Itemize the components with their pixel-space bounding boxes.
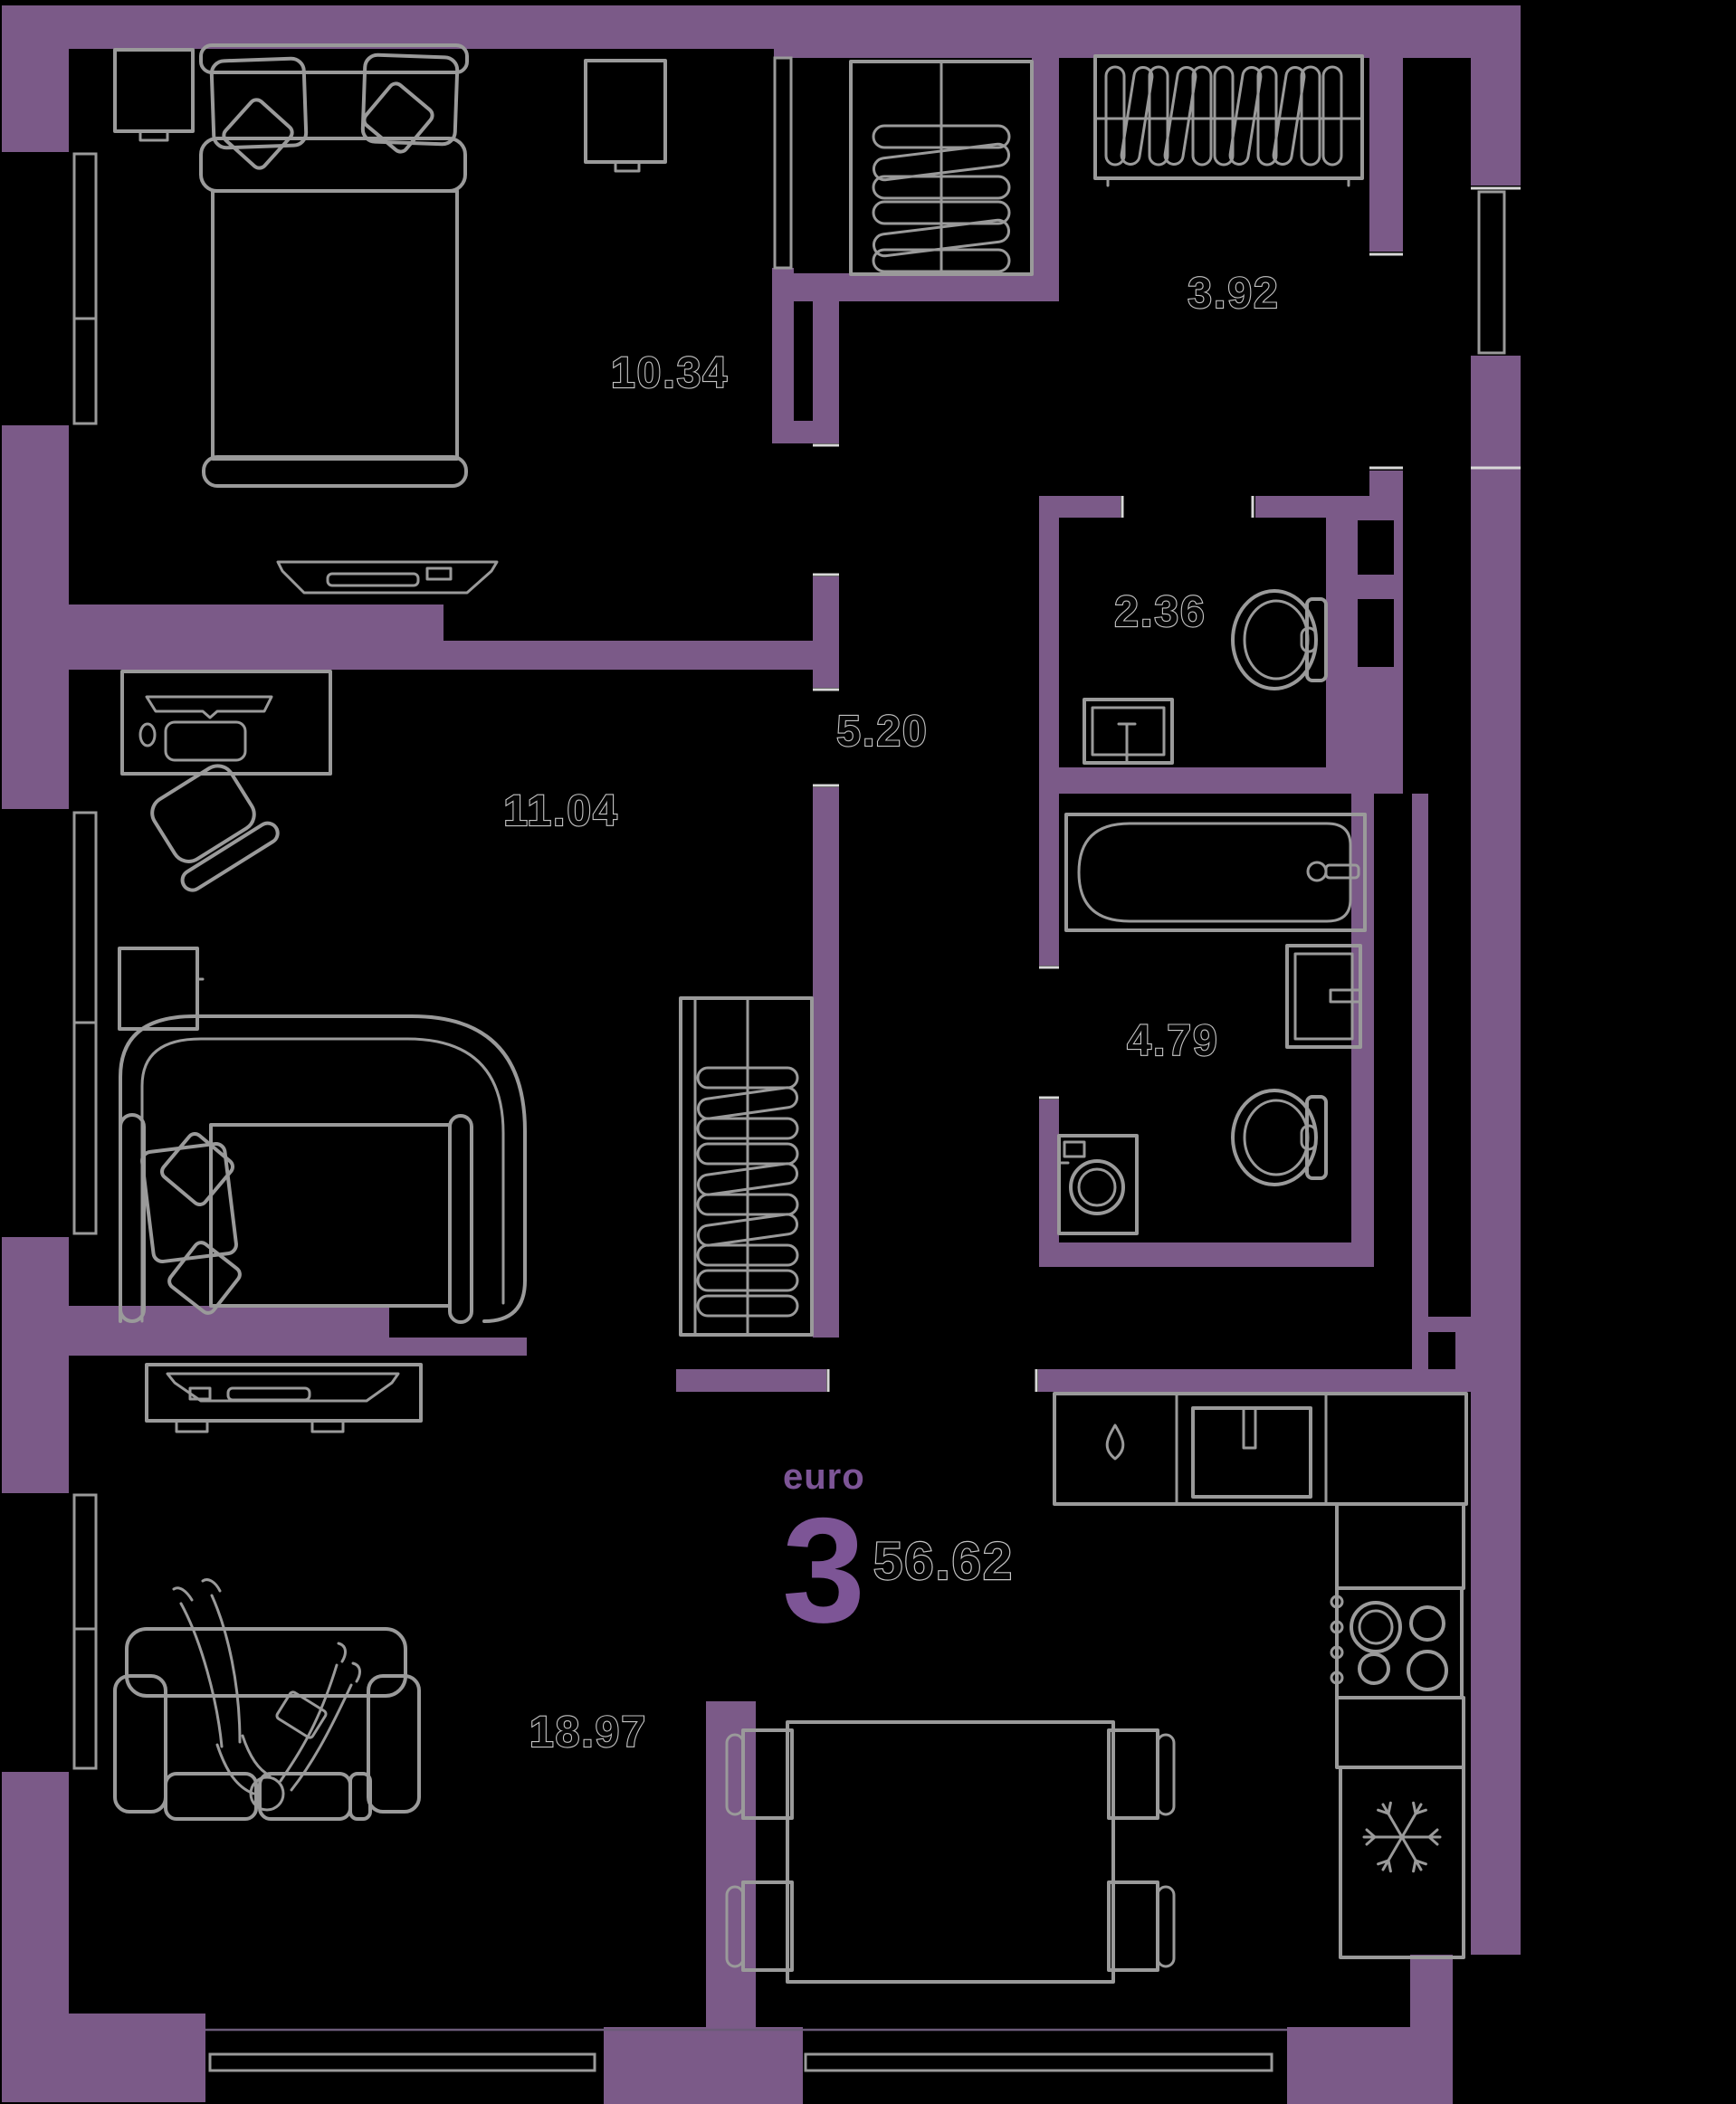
area-label-wc: 2.36 <box>1114 588 1206 636</box>
wall-segment <box>1039 1242 1374 1267</box>
area-label-hallway: 5.20 <box>836 708 928 756</box>
area-label-bedroom: 10.34 <box>611 349 729 397</box>
dining-chair <box>1109 1730 1174 1818</box>
dining-chair <box>1109 1882 1174 1970</box>
wall-segment <box>813 576 839 688</box>
wall-segment <box>1255 496 1326 518</box>
wardrobe-hangers-2 <box>681 998 812 1335</box>
wall-segment <box>2 1772 69 2021</box>
labels: 10.34 3.92 2.36 5.20 11.04 4.79 18.97 eu… <box>503 270 1279 1757</box>
window <box>806 2054 1272 2071</box>
wall-segment <box>69 605 444 670</box>
entrance-opening <box>1479 192 1504 353</box>
wall-segment <box>2 425 69 809</box>
area-label-bedroom2: 11.04 <box>503 787 618 835</box>
desk <box>122 671 330 774</box>
wall-segment <box>2 1237 69 1493</box>
sofa-pillow <box>159 1131 236 1208</box>
wardrobe-hangers <box>851 62 1032 274</box>
double-bed <box>201 45 467 486</box>
kitchen-counter <box>1054 1394 1466 1504</box>
wall-segment <box>1039 496 1059 794</box>
fridge <box>1340 1767 1464 1957</box>
unit-badge: euro 3 56.62 <box>782 1457 1014 1653</box>
wall-segment <box>706 1701 756 2027</box>
dining-table <box>787 1722 1113 1982</box>
wall-segment <box>676 1369 826 1392</box>
wall-segment <box>1039 1100 1059 1267</box>
wall-segment <box>1032 52 1059 301</box>
wall-segment <box>2 5 774 49</box>
drying-rack <box>1095 56 1362 186</box>
bedroom-tv <box>278 562 497 593</box>
sofa-bed <box>120 1016 525 1322</box>
living-room-furniture <box>115 1365 421 1819</box>
wall-segment <box>1287 2027 1453 2104</box>
office-chair <box>138 755 281 893</box>
tv-console <box>147 1365 421 1432</box>
area-label-loggia: 3.92 <box>1188 270 1279 318</box>
sofa <box>115 1629 419 1819</box>
wall-segment <box>1039 767 1374 794</box>
washbasin <box>1084 700 1172 763</box>
unit-total-area: 56.62 <box>873 1532 1014 1591</box>
wall-segment <box>1410 1955 1453 2029</box>
sofa-pillow <box>141 1143 237 1262</box>
loggia-furniture <box>851 56 1362 274</box>
stove <box>1331 1588 1462 1698</box>
window <box>74 154 96 424</box>
wall-segment <box>1471 356 1521 1955</box>
wall-segment <box>1412 794 1428 1317</box>
wall-segment <box>2 2014 205 2102</box>
wall-segment <box>772 273 1035 301</box>
kitchen-cabinet <box>1337 1504 1464 1588</box>
washbasin-2 <box>1287 946 1360 1047</box>
toilet <box>1233 591 1326 689</box>
floor-plan-canvas: 10.34 3.92 2.36 5.20 11.04 4.79 18.97 eu… <box>0 0 1736 2104</box>
bedroom2-furniture <box>119 671 812 1335</box>
window <box>74 1495 96 1768</box>
window <box>210 2054 595 2071</box>
nightstand <box>586 61 665 162</box>
bedroom-furniture <box>115 45 665 593</box>
wall-segment <box>604 2027 803 2104</box>
decor-pillow <box>221 97 295 171</box>
walls <box>2 5 1521 2104</box>
wall-segment <box>2 5 69 152</box>
area-label-bathroom: 4.79 <box>1127 1017 1218 1065</box>
water-drop-icon <box>1107 1425 1123 1459</box>
wall-segment <box>1369 52 1403 252</box>
area-label-living: 18.97 <box>529 1709 647 1757</box>
duct-void <box>1428 1332 1455 1369</box>
kitchen-cabinet <box>1337 1698 1464 1767</box>
toilet-2 <box>1233 1090 1326 1185</box>
wall-segment <box>69 1306 389 1356</box>
balcony-window <box>775 58 791 268</box>
windows <box>74 58 1521 2071</box>
wall-segment <box>1038 1369 1475 1392</box>
wall-segment <box>772 421 839 443</box>
nightstand <box>115 50 193 131</box>
dining-set <box>727 1722 1174 1982</box>
wall-segment <box>813 301 839 421</box>
duct-void <box>1358 520 1394 575</box>
wall-segment <box>1039 496 1121 518</box>
bathtub <box>1066 814 1365 930</box>
wall-segment <box>444 641 813 670</box>
wall-segment <box>813 787 839 1338</box>
duct-void <box>1358 599 1394 667</box>
wall-segment <box>1326 496 1349 794</box>
wall-segment <box>1471 5 1521 186</box>
wall-segment <box>774 5 1521 58</box>
kitchen-sink <box>1193 1408 1311 1497</box>
snowflake-icon <box>1364 1803 1440 1871</box>
unit-rooms-count: 3 <box>782 1487 865 1653</box>
wall-segment <box>1039 794 1059 966</box>
wall-segment <box>389 1338 527 1356</box>
washing-machine <box>1059 1136 1137 1233</box>
floor-plan: 10.34 3.92 2.36 5.20 11.04 4.79 18.97 eu… <box>0 0 1736 2104</box>
